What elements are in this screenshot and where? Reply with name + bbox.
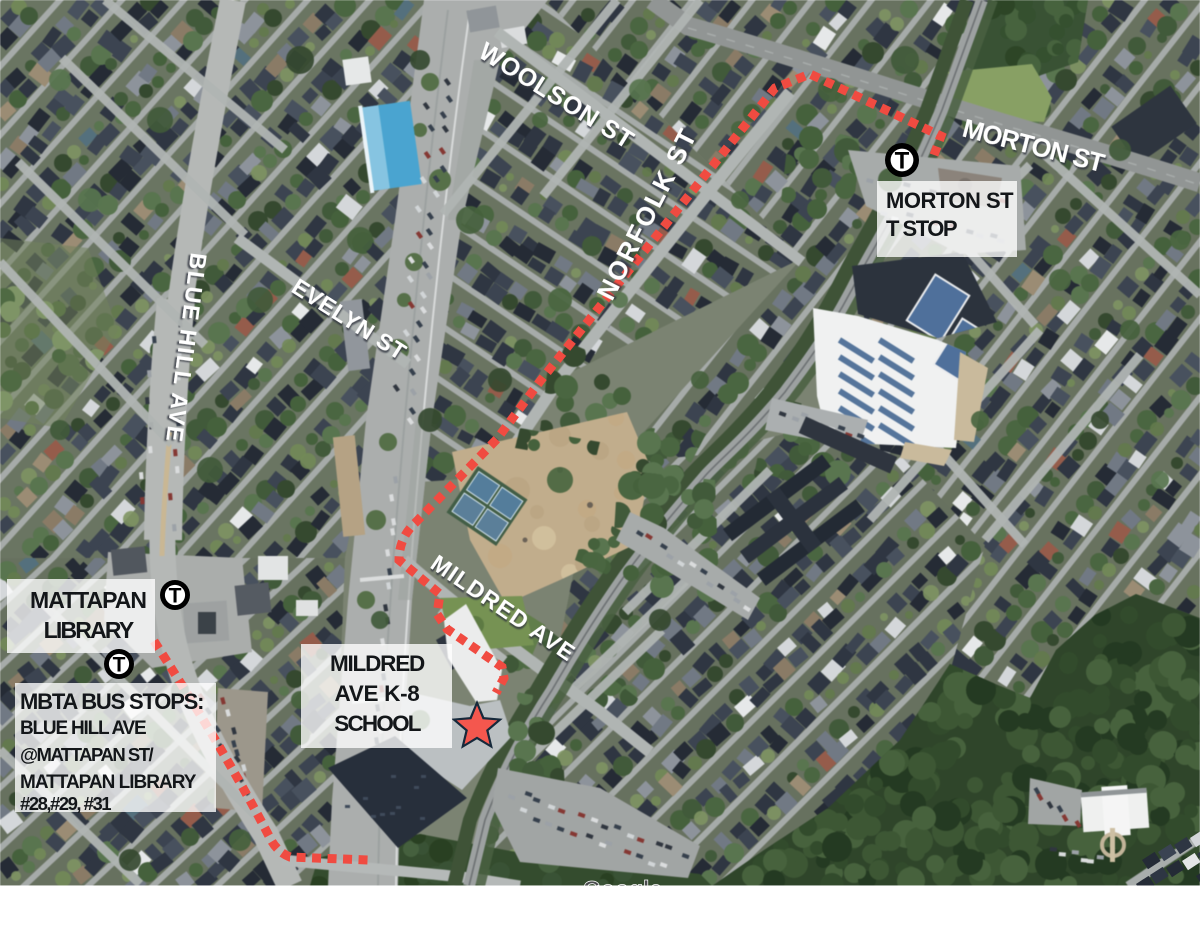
svg-text:BLUE HILL AVE: BLUE HILL AVE <box>20 718 146 739</box>
svg-text:MILDRED: MILDRED <box>330 651 425 676</box>
svg-text:T: T <box>169 585 182 608</box>
svg-text:@MATTAPAN ST/: @MATTAPAN ST/ <box>20 744 153 765</box>
svg-text:T: T <box>895 148 910 175</box>
svg-text:SCHOOL: SCHOOL <box>334 711 422 736</box>
svg-text:MATTAPAN LIBRARY: MATTAPAN LIBRARY <box>20 772 197 793</box>
svg-text:#28,#29, #31: #28,#29, #31 <box>20 793 111 814</box>
svg-text:MBTA BUS STOPS:: MBTA BUS STOPS: <box>20 689 203 714</box>
svg-text:MATTAPAN: MATTAPAN <box>30 587 146 613</box>
svg-text:T: T <box>113 654 126 677</box>
svg-text:AVE K-8: AVE K-8 <box>335 681 420 706</box>
svg-text:T STOP: T STOP <box>886 216 957 241</box>
svg-text:MORTON ST: MORTON ST <box>886 188 1014 213</box>
svg-text:LIBRARY: LIBRARY <box>44 617 134 643</box>
